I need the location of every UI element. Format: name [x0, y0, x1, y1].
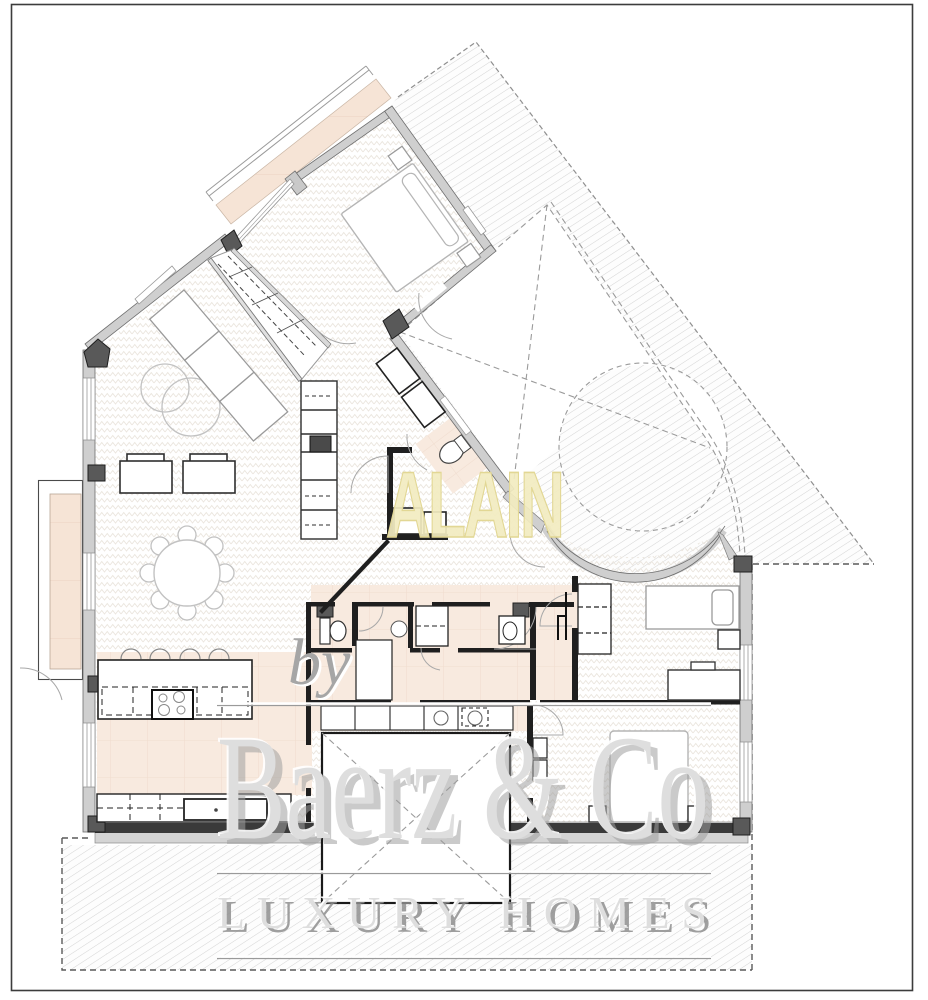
svg-text:by: by: [288, 626, 351, 699]
svg-text:Baerz & Co: Baerz & Co: [217, 705, 709, 871]
svg-text:ALAIN: ALAIN: [386, 452, 562, 557]
